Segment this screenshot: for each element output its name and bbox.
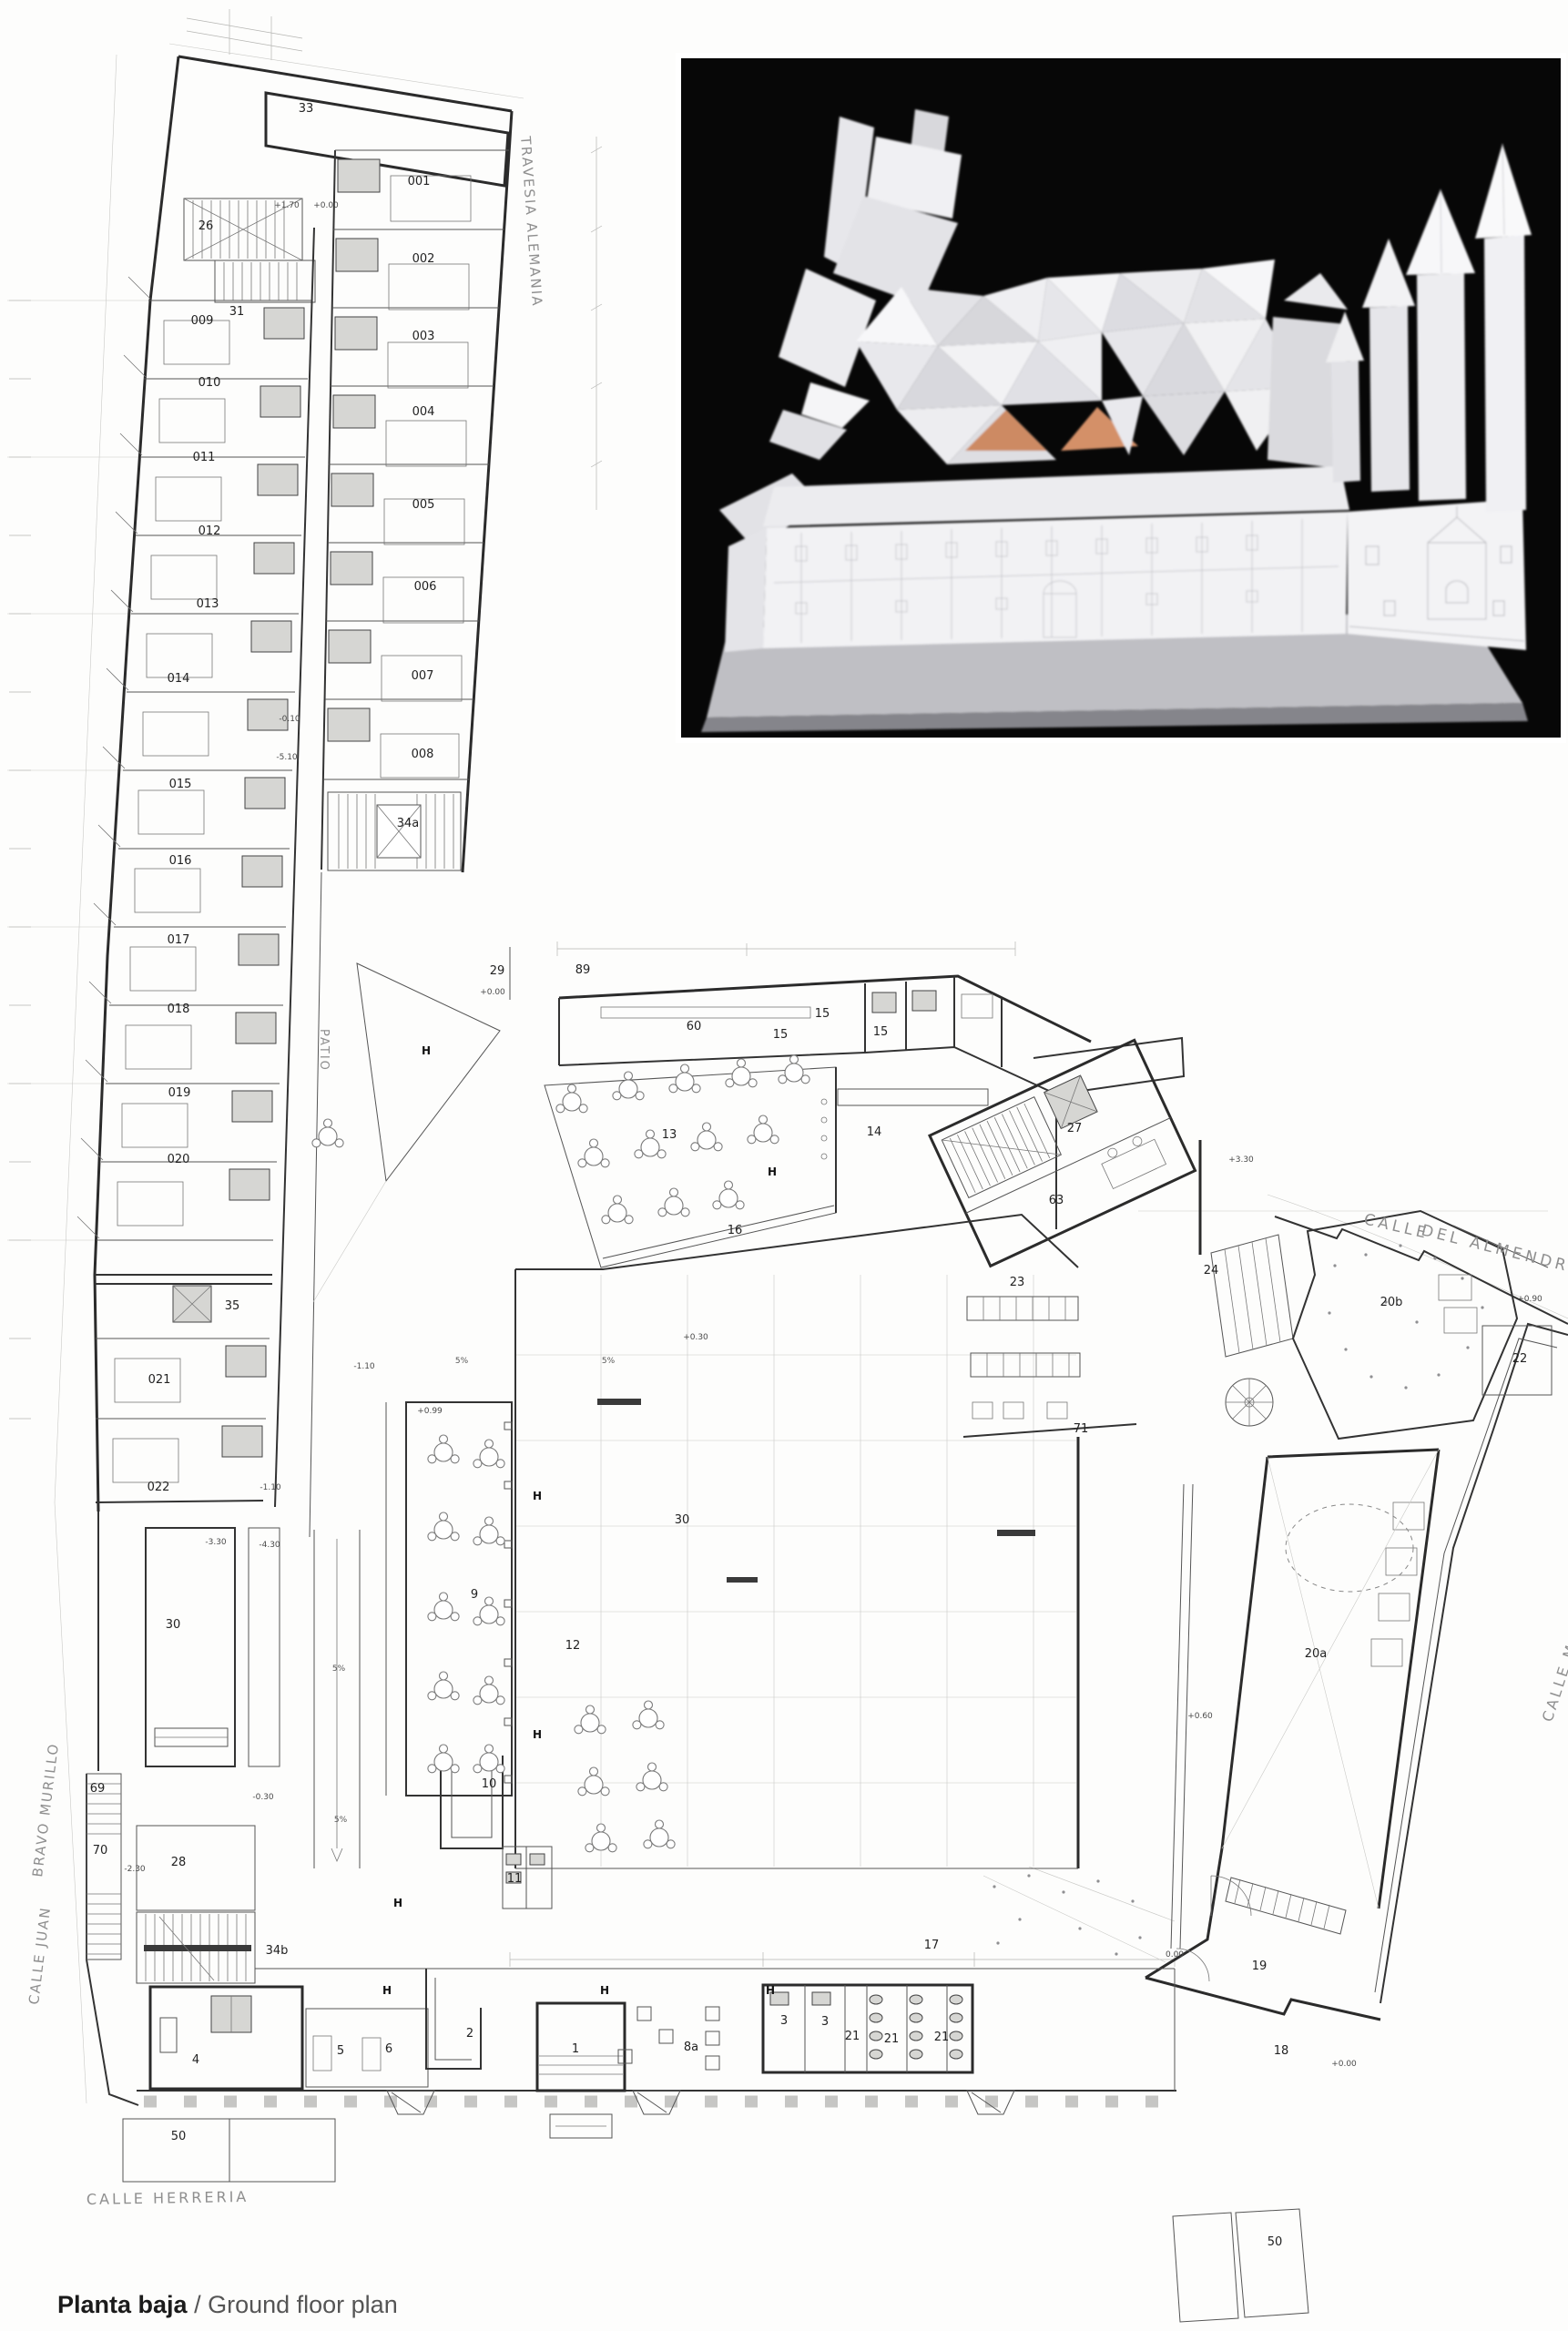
room-label: 12	[565, 1639, 581, 1653]
slope-mark: 5%	[334, 1816, 348, 1825]
beds-right	[381, 176, 471, 778]
magazine-page: 3300100200300400500600700834a26009310100…	[0, 0, 1568, 2331]
room-label: 13	[662, 1128, 677, 1142]
level-mark: +0.00	[480, 988, 505, 997]
level-mark: +0.90	[1517, 1295, 1543, 1304]
room-label: 50	[171, 2130, 187, 2143]
room-label: 017	[168, 933, 190, 947]
level-mark: -2.30	[124, 1865, 146, 1874]
room-label: 31	[229, 305, 245, 319]
hydrant-marker: H	[422, 1044, 431, 1057]
room-label: 004	[412, 405, 435, 419]
hydrant-marker: H	[600, 1984, 609, 1997]
room-label: 34a	[397, 817, 420, 830]
room-label: 17	[924, 1939, 940, 1952]
room-label: 4	[192, 2053, 199, 2067]
slope-mark: 5%	[602, 1357, 616, 1366]
room-label: 20b	[1380, 1296, 1403, 1309]
room-label: 008	[412, 748, 434, 761]
street-label: TRAVESIA ALEMANIA	[517, 135, 545, 308]
room-label: 14	[867, 1125, 882, 1139]
room-label: 020	[168, 1153, 190, 1166]
room-label: 15	[873, 1025, 889, 1039]
room-label: 63	[1049, 1194, 1064, 1207]
room-label: 5	[337, 2044, 344, 2058]
room-label: 15	[815, 1007, 830, 1021]
street-label: BRAVO MURILLO	[29, 1742, 62, 1878]
level-mark: -4.30	[259, 1541, 280, 1550]
level-mark: +0.99	[417, 1407, 443, 1416]
room-label: 010	[199, 376, 221, 390]
hydrant-marker: H	[533, 1728, 542, 1741]
hydrant-marker: H	[533, 1490, 542, 1502]
room-label: 20a	[1305, 1647, 1328, 1661]
slope-mark: 5%	[455, 1357, 469, 1366]
central-hall-30	[515, 1215, 1078, 1868]
room-label: 6	[385, 2042, 392, 2056]
room-label: 21	[884, 2032, 900, 2046]
street-label: CALLE HERRERIA	[87, 2188, 249, 2208]
caption-separator: /	[188, 2291, 209, 2318]
caption: Planta baja / Ground floor plan	[57, 2291, 398, 2319]
slope-mark: 5%	[332, 1664, 346, 1674]
room-label: 3	[821, 2015, 829, 2029]
room-label: 022	[148, 1481, 170, 1494]
room-label: 3	[780, 2014, 788, 2028]
level-mark: -5.10	[276, 753, 298, 762]
level-mark: +0.30	[683, 1333, 708, 1342]
hydrant-marker: H	[768, 1165, 777, 1178]
room-label: 019	[168, 1086, 191, 1100]
room-label: 009	[191, 314, 214, 328]
room-label: 24	[1204, 1264, 1219, 1277]
room-label: 19	[1252, 1959, 1268, 1973]
level-mark: -0.10	[279, 715, 300, 724]
room-label: 23	[1010, 1276, 1025, 1289]
room-label: 29	[490, 964, 505, 978]
street-label: DEL ALMENDRO	[1420, 1221, 1568, 1279]
room-label: 015	[169, 778, 192, 791]
room-label: 2	[466, 2027, 473, 2041]
room-label: 021	[148, 1373, 171, 1387]
model-photo	[676, 53, 1566, 743]
room-label: 016	[169, 854, 192, 868]
room-label: 30	[675, 1513, 690, 1527]
room-label: 60	[687, 1020, 702, 1033]
room-label: 69	[90, 1782, 106, 1796]
room-label: 33	[299, 102, 314, 116]
room-label: 27	[1067, 1122, 1083, 1135]
caption-title-en: Ground floor plan	[208, 2291, 398, 2318]
beds-left	[113, 321, 229, 1482]
level-mark: +0.00	[313, 201, 339, 210]
room-label: 002	[412, 252, 435, 266]
level-mark: -1.10	[353, 1362, 375, 1371]
room-label: 22	[1512, 1352, 1528, 1366]
room-label: 89	[575, 963, 591, 977]
room-label: 21	[845, 2030, 860, 2043]
level-mark: +3.30	[1228, 1155, 1254, 1165]
room-label: 35	[225, 1299, 240, 1313]
street-label: PATIO	[317, 1029, 331, 1072]
room-label: 005	[412, 498, 435, 512]
room-label: 26	[199, 219, 214, 233]
room-label: 28	[171, 1856, 187, 1869]
room-label: 018	[168, 1003, 190, 1016]
room-label: 013	[197, 597, 219, 611]
room-label: 30	[166, 1618, 181, 1632]
room-label: 10	[482, 1777, 497, 1791]
room-label: 70	[93, 1844, 108, 1858]
level-mark: -3.30	[205, 1538, 227, 1547]
bathroom-pods-right	[328, 159, 380, 741]
cafe-tables	[312, 1055, 809, 1852]
room-label: 1	[572, 2042, 579, 2056]
hydrant-marker: H	[393, 1897, 402, 1909]
block-27-63	[930, 1040, 1196, 1266]
room-label: 11	[507, 1872, 523, 1886]
garden-dots	[993, 1244, 1483, 1955]
room-label: 006	[414, 580, 437, 594]
level-mark: 0.00	[1166, 1950, 1184, 1959]
room-label: 8a	[684, 2041, 698, 2054]
hydrant-marker: H	[766, 1984, 775, 1997]
strip-60-15	[559, 976, 1091, 1091]
room-label: 34b	[266, 1944, 289, 1958]
caption-title-es: Planta baja	[57, 2291, 188, 2318]
level-mark: +1.70	[274, 201, 300, 210]
room-label: 16	[728, 1224, 743, 1237]
room-label: 001	[408, 175, 431, 188]
room-label: 012	[199, 524, 221, 538]
street-label: CALLE MARQUÉS DE RIOS	[1539, 1485, 1568, 1724]
room-label: 50	[1268, 2235, 1283, 2249]
room-label: 18	[1274, 2044, 1289, 2058]
room-label: 003	[412, 330, 435, 343]
patio-area	[310, 872, 510, 1537]
room-label: 014	[168, 672, 190, 686]
room-label: 71	[1074, 1422, 1089, 1436]
room-label: 011	[193, 451, 216, 464]
floor-plan-drawing: 3300100200300400500600700834a26009310100…	[0, 0, 1568, 2331]
left-wing	[77, 56, 512, 1512]
level-mark: +0.60	[1187, 1712, 1213, 1721]
room-label: 15	[773, 1028, 789, 1042]
room-label: 21	[934, 2031, 950, 2044]
room-label: 007	[412, 669, 434, 683]
level-mark: -0.30	[252, 1793, 274, 1802]
south-wing	[137, 1826, 1176, 2138]
level-mark: +0.00	[1331, 2060, 1357, 2069]
level-mark: -1.10	[260, 1483, 281, 1492]
hydrant-marker: H	[382, 1984, 392, 1997]
street-label: CALLE JUAN	[25, 1906, 54, 2006]
room-label: 9	[471, 1588, 478, 1602]
